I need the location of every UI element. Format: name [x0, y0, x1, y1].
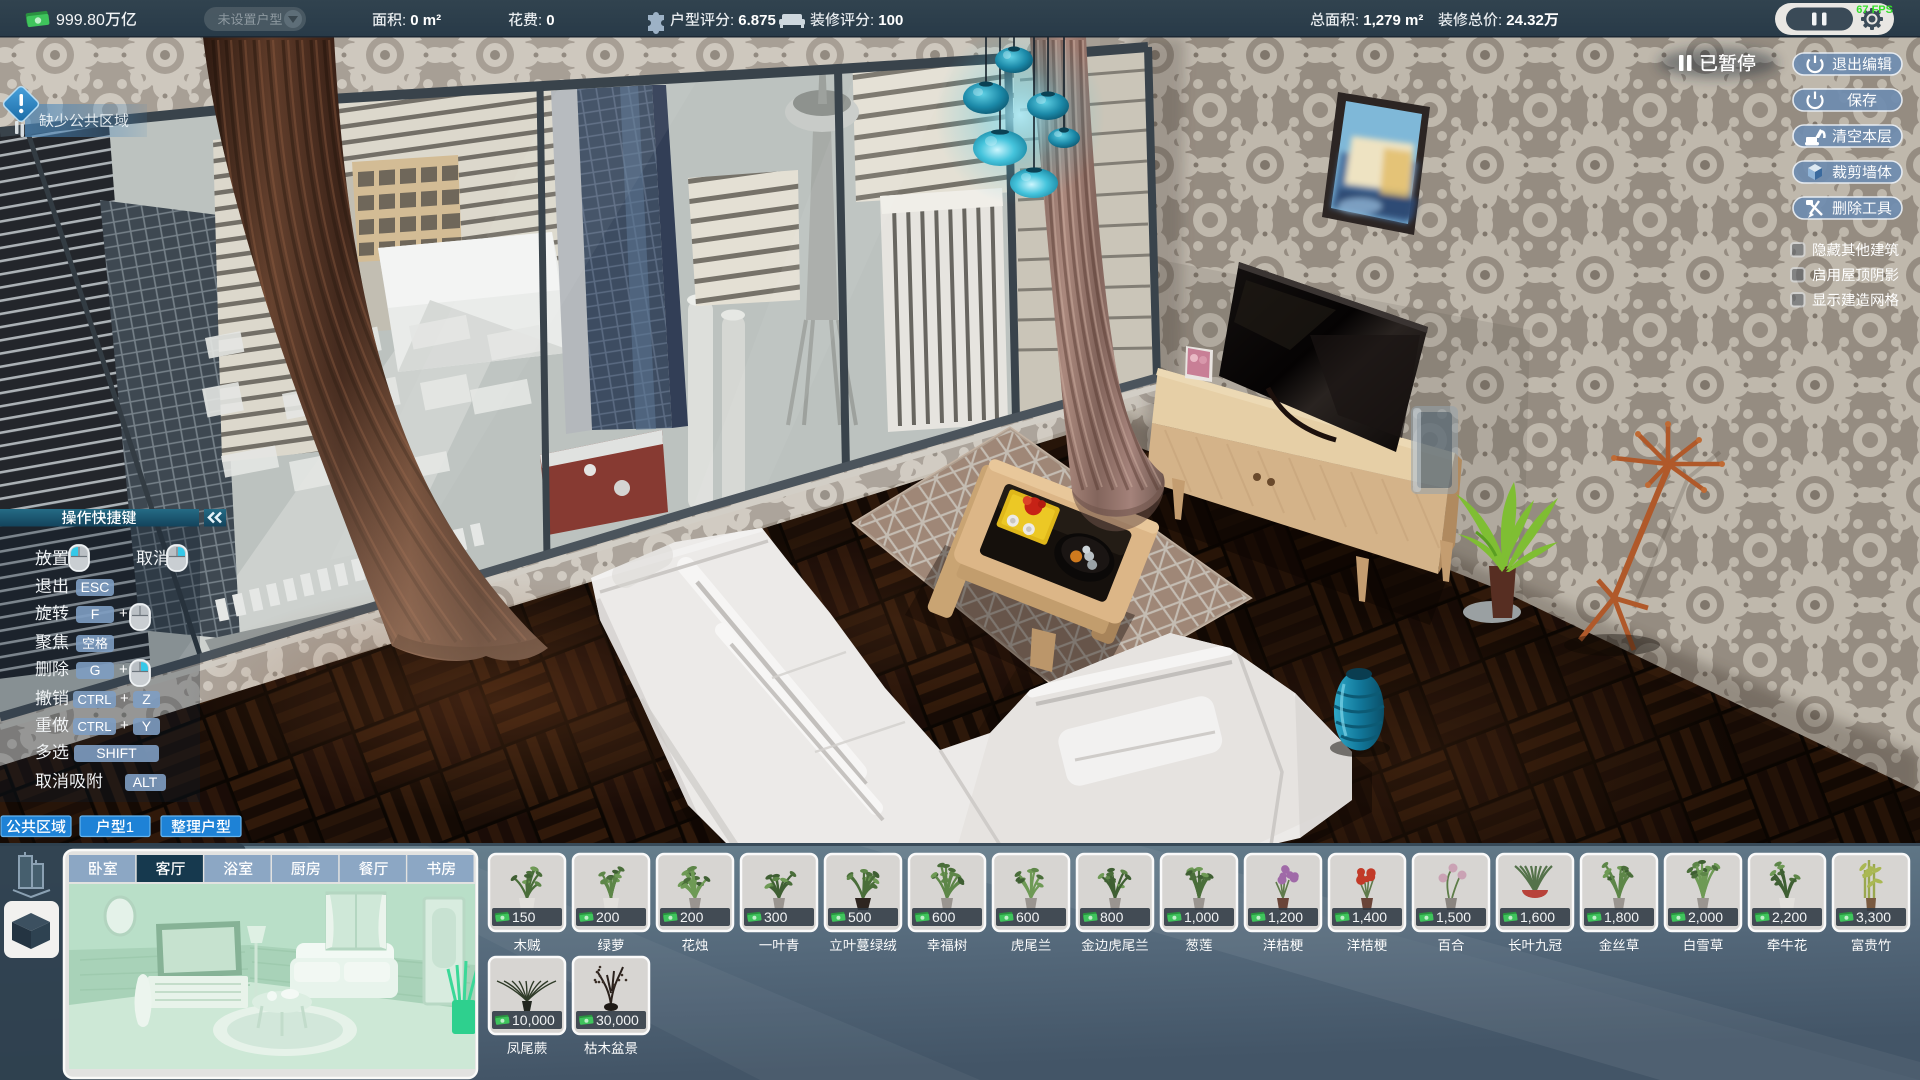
svg-text::: : — [870, 12, 874, 29]
svg-text:ALT: ALT — [133, 774, 158, 790]
svg-text:1,279 m²: 1,279 m² — [1363, 12, 1423, 29]
svg-text:ESC: ESC — [81, 579, 110, 595]
svg-text:10,000: 10,000 — [512, 1012, 555, 1028]
svg-text:Y: Y — [142, 718, 152, 734]
svg-text:SHIFT: SHIFT — [96, 745, 137, 761]
svg-text:0 m²: 0 m² — [410, 12, 441, 29]
svg-text:1,500: 1,500 — [1436, 909, 1471, 925]
svg-text:2,200: 2,200 — [1772, 909, 1807, 925]
svg-text:600: 600 — [932, 909, 956, 925]
svg-text:800: 800 — [1100, 909, 1124, 925]
svg-text:300: 300 — [764, 909, 788, 925]
svg-text:1: 1 — [126, 819, 134, 836]
svg-text::: : — [402, 12, 406, 29]
svg-text:67 FPS: 67 FPS — [1856, 4, 1893, 16]
svg-text:G: G — [90, 662, 101, 678]
svg-text:2,000: 2,000 — [1688, 909, 1723, 925]
svg-text:6.875: 6.875 — [738, 12, 776, 29]
svg-text:0: 0 — [546, 12, 554, 29]
svg-text:+: + — [120, 690, 129, 707]
svg-text:F: F — [91, 606, 100, 622]
svg-text:200: 200 — [680, 909, 704, 925]
svg-text:1,200: 1,200 — [1268, 909, 1303, 925]
svg-text:CTRL: CTRL — [78, 719, 112, 734]
svg-text::: : — [538, 12, 542, 29]
svg-text:Z: Z — [142, 691, 151, 707]
svg-text::: : — [730, 12, 734, 29]
svg-text:1,800: 1,800 — [1604, 909, 1639, 925]
svg-text:1,600: 1,600 — [1520, 909, 1555, 925]
svg-text:3,300: 3,300 — [1856, 909, 1891, 925]
svg-text:30,000: 30,000 — [596, 1012, 639, 1028]
svg-text:600: 600 — [1016, 909, 1040, 925]
svg-text:150: 150 — [512, 909, 536, 925]
svg-text:999.80: 999.80 — [56, 12, 105, 29]
svg-text::: : — [1498, 12, 1502, 29]
svg-text:200: 200 — [596, 909, 620, 925]
svg-text:100: 100 — [878, 12, 903, 29]
svg-text:1,400: 1,400 — [1352, 909, 1387, 925]
svg-text:+: + — [119, 605, 128, 622]
svg-text:CTRL: CTRL — [78, 692, 112, 707]
svg-text:+: + — [119, 661, 128, 678]
svg-text:500: 500 — [848, 909, 872, 925]
svg-text:1,000: 1,000 — [1184, 909, 1219, 925]
svg-text::: : — [1355, 12, 1359, 29]
svg-text:+: + — [120, 717, 129, 734]
svg-text:24.32: 24.32 — [1506, 12, 1544, 29]
